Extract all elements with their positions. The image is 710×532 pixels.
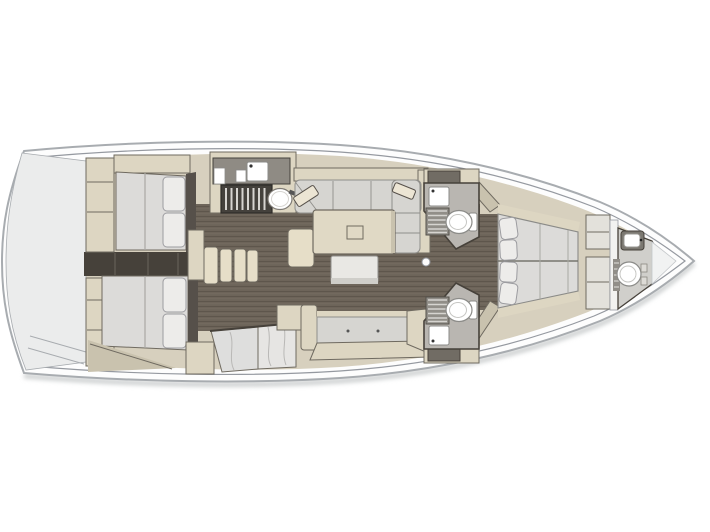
small-basin [214, 168, 225, 184]
settee-seat [317, 317, 407, 343]
aft-cabin-starboard: Aft double cabin (starboard) [86, 155, 196, 252]
table-shadow-edge [391, 211, 395, 253]
toilet-fitting [641, 277, 647, 285]
pillow [499, 240, 517, 261]
vanity-tray [428, 349, 460, 361]
owner-cabin: Forward owner cabin with island berth [498, 204, 580, 318]
aft-cabinet [186, 342, 214, 374]
pillow [499, 282, 519, 305]
settee-armrest-right [407, 309, 426, 352]
vanity-tray [428, 171, 460, 183]
table-side-seat [288, 229, 314, 267]
pillow [163, 278, 186, 312]
small-basin [236, 170, 246, 182]
galley: Galley with stove and sinks [210, 152, 297, 213]
companionway-side-wall [188, 230, 204, 280]
settee-armrest-left [301, 305, 317, 350]
pillow [163, 213, 185, 247]
yacht-floorplan-page: Yacht hull Stern swim platform Aft doubl… [0, 0, 710, 532]
faucet-dot [432, 340, 435, 343]
washbasin-icon [624, 234, 640, 247]
sofa-back [294, 168, 428, 181]
aft-bulkhead-band [84, 252, 196, 276]
bow-locker-panel [586, 257, 610, 309]
compression-post [422, 258, 430, 266]
pillow [499, 262, 517, 283]
stern-platform: Stern swim platform [6, 153, 86, 370]
yacht-floorplan-image: Yacht hull Stern swim platform Aft doubl… [0, 0, 710, 532]
pillow [499, 217, 519, 240]
pillow [163, 177, 185, 211]
faucet-dot [249, 164, 252, 167]
headboard [188, 276, 198, 348]
stool-base-band [331, 278, 378, 284]
companionway-steps [220, 249, 232, 282]
faucet-dot [432, 190, 435, 193]
pillow [163, 314, 186, 348]
companionway-steps [234, 249, 246, 282]
faucet-dot [640, 239, 643, 242]
companionway-steps [247, 250, 258, 282]
seat-button [377, 330, 380, 333]
wardrobe [86, 158, 114, 252]
companionway-steps [204, 247, 218, 284]
counter-cabinet [277, 305, 303, 330]
stern-platform-deck [6, 153, 86, 370]
washbasin-icon [429, 187, 449, 206]
shelf [114, 155, 190, 173]
seat-button [347, 330, 350, 333]
washbasin-icon [429, 326, 449, 345]
salon-table [313, 210, 395, 254]
toilet-fitting [641, 264, 647, 272]
